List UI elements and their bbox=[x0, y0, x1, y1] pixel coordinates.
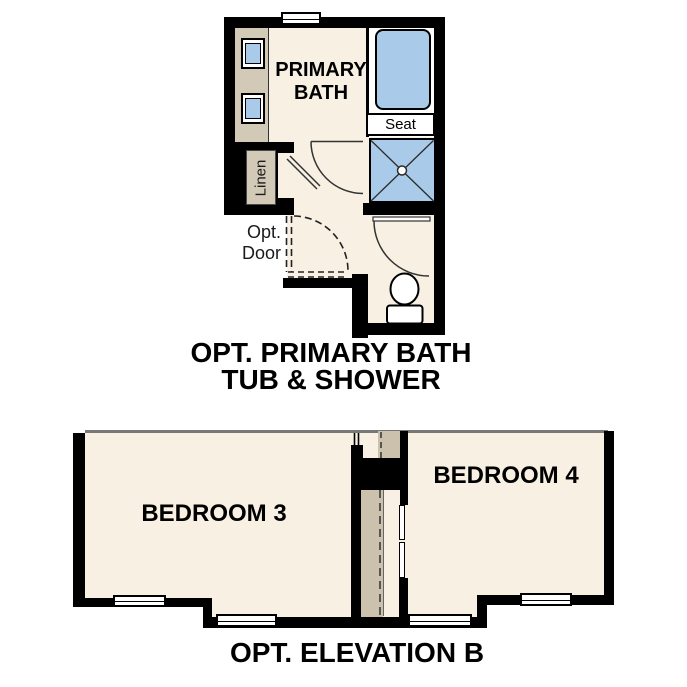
toilet-door bbox=[373, 217, 430, 276]
toilet-fixture bbox=[387, 274, 423, 324]
plan-linework bbox=[0, 0, 687, 687]
stair-linework bbox=[355, 432, 384, 616]
floor-plan-canvas: Seat PRIMARY BATH Linen Opt. Door OPT. P… bbox=[0, 0, 687, 687]
optional-door bbox=[287, 216, 349, 277]
shower-pattern bbox=[371, 141, 434, 202]
